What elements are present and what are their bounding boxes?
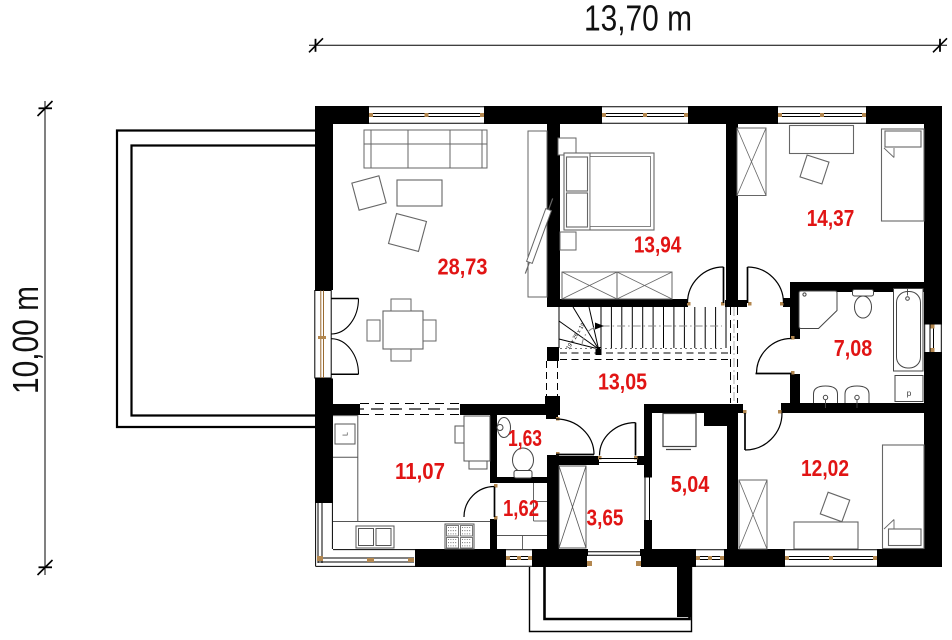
svg-text:1,62: 1,62 — [503, 495, 539, 521]
svg-text:3,65: 3,65 — [587, 505, 624, 531]
svg-text:5,04: 5,04 — [671, 471, 710, 497]
svg-text:7,08: 7,08 — [834, 335, 873, 361]
svg-text:28,73: 28,73 — [438, 254, 488, 280]
svg-text:1,63: 1,63 — [508, 425, 542, 451]
svg-text:p: p — [907, 389, 912, 398]
svg-text:14,37: 14,37 — [807, 205, 855, 231]
svg-text:12,02: 12,02 — [801, 455, 849, 481]
svg-text:13,05: 13,05 — [598, 369, 647, 395]
svg-text:13,70 m: 13,70 m — [584, 0, 692, 39]
svg-text:L: L — [343, 432, 350, 436]
svg-text:10,00 m: 10,00 m — [5, 286, 46, 394]
svg-text:11,07: 11,07 — [395, 458, 445, 484]
svg-text:13,94: 13,94 — [634, 232, 682, 258]
